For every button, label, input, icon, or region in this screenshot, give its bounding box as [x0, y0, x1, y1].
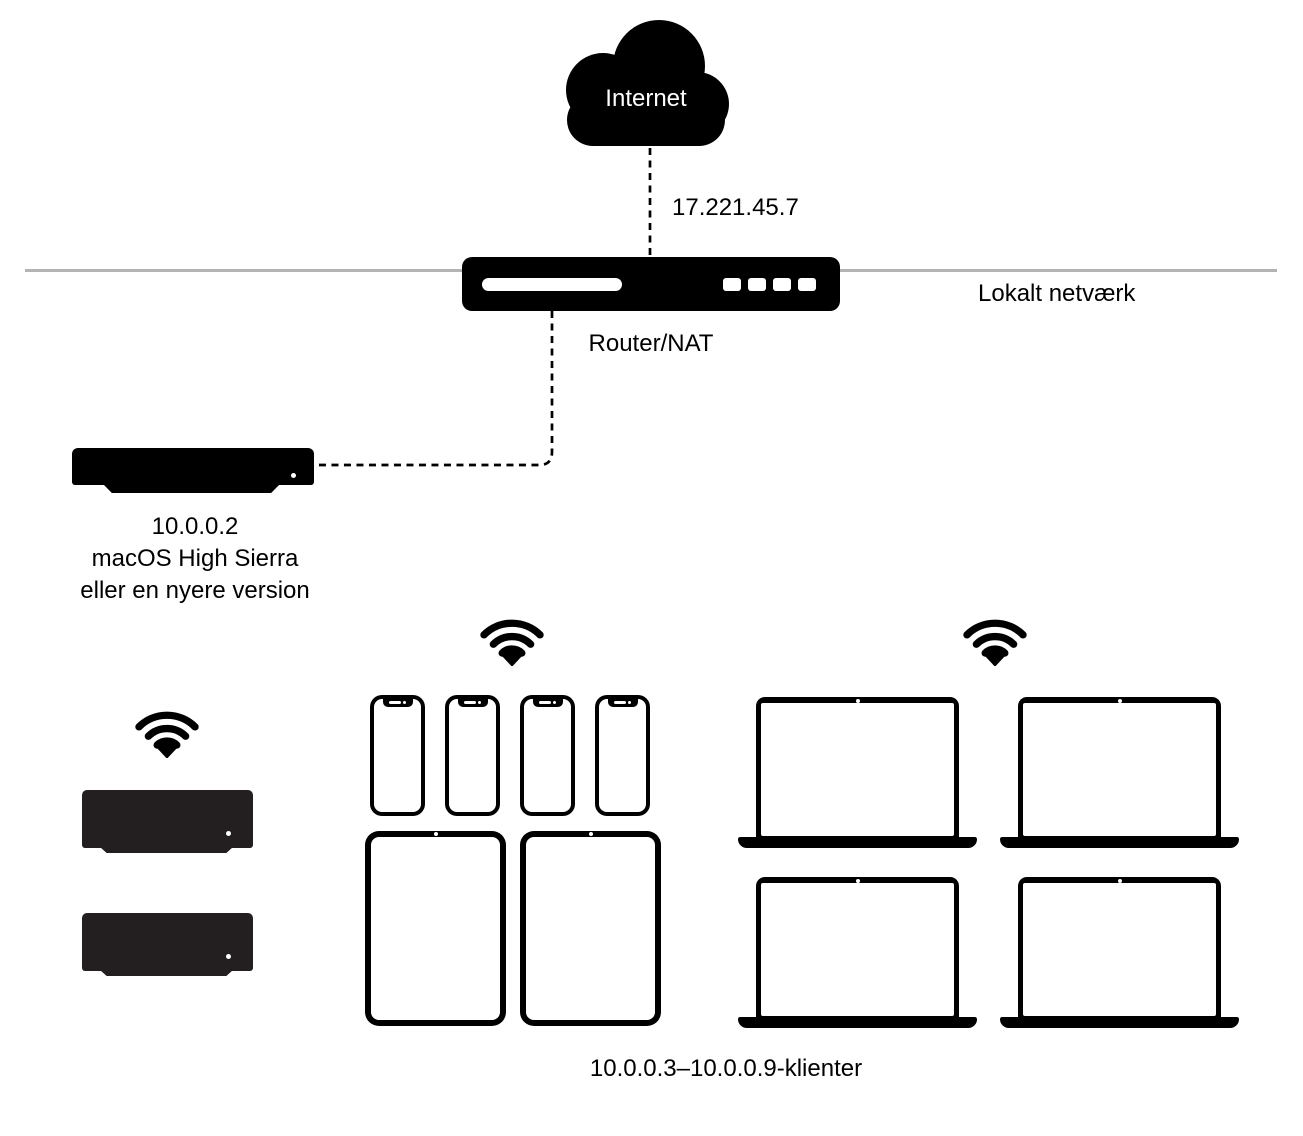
phone-notch — [383, 698, 413, 707]
phone-camera — [628, 701, 631, 704]
mac-mini-body — [82, 913, 253, 971]
power-led — [226, 954, 231, 959]
clients-range-label: 10.0.0.3–10.0.0.9-klienter — [426, 1055, 1026, 1083]
iphone-icon — [445, 695, 500, 816]
iphone-icon — [595, 695, 650, 816]
ipad-screen — [371, 837, 500, 1020]
macbook-display — [761, 883, 954, 1016]
phone-screen — [374, 699, 421, 812]
ipad-camera — [589, 832, 593, 836]
mac-mini-pedestal — [103, 484, 280, 493]
ipad-screen — [526, 837, 655, 1020]
wifi-icon — [951, 604, 1039, 666]
mac-mini-server-icon — [72, 448, 314, 493]
router-label: Router/NAT — [462, 330, 840, 358]
mac-mini-body — [72, 448, 314, 485]
macbook-display — [1023, 703, 1216, 836]
ipad-camera — [434, 832, 438, 836]
wifi-icon — [123, 696, 211, 758]
macbook-screen — [1018, 697, 1221, 840]
router-led — [748, 278, 766, 291]
iphone-icon — [370, 695, 425, 816]
macbook-base — [1000, 1017, 1239, 1028]
ipad-icon — [365, 831, 506, 1026]
phone-speaker — [464, 701, 476, 704]
macbook-icon — [738, 877, 977, 1028]
router-led — [798, 278, 816, 291]
macbook-camera — [856, 699, 860, 703]
macbook-camera — [856, 879, 860, 883]
phone-camera — [478, 701, 481, 704]
internet-label: Internet — [555, 85, 737, 113]
phone-notch — [533, 698, 563, 707]
macbook-base — [738, 1017, 977, 1028]
server-os-label-2: eller en nyere version — [40, 575, 350, 607]
macbook-icon — [1000, 877, 1239, 1028]
phone-notch — [608, 698, 638, 707]
wifi-icon — [468, 604, 556, 666]
local-network-label: Lokalt netværk — [978, 280, 1135, 308]
phone-screen — [449, 699, 496, 812]
macbook-screen — [1018, 877, 1221, 1020]
phone-notch — [458, 698, 488, 707]
server-caption: 10.0.0.2 macOS High Sierra eller en nyer… — [40, 511, 350, 607]
mac-mini-client-icon — [82, 913, 253, 976]
power-led — [291, 473, 296, 478]
macbook-camera — [1118, 879, 1122, 883]
network-diagram: Internet 17.221.45.7 Router/NAT Lokalt n… — [0, 0, 1303, 1136]
phone-speaker — [389, 701, 401, 704]
macbook-display — [1023, 883, 1216, 1016]
phone-speaker — [614, 701, 626, 704]
mac-mini-pedestal — [100, 970, 233, 976]
phone-camera — [403, 701, 406, 704]
wan-ip-label: 17.221.45.7 — [672, 194, 799, 222]
phone-screen — [524, 699, 571, 812]
macbook-base — [1000, 837, 1239, 848]
macbook-icon — [738, 697, 977, 848]
macbook-screen — [756, 877, 959, 1020]
macbook-icon — [1000, 697, 1239, 848]
router-slot — [482, 278, 622, 291]
phone-screen — [599, 699, 646, 812]
macbook-screen — [756, 697, 959, 840]
router-led — [723, 278, 741, 291]
router-led — [773, 278, 791, 291]
server-os-label: macOS High Sierra — [40, 543, 350, 575]
power-led — [226, 831, 231, 836]
internet-cloud-icon — [555, 18, 737, 148]
mac-mini-client-icon — [82, 790, 253, 853]
macbook-camera — [1118, 699, 1122, 703]
iphone-icon — [520, 695, 575, 816]
mac-mini-pedestal — [100, 847, 233, 853]
server-ip-label: 10.0.0.2 — [40, 511, 350, 543]
phone-speaker — [539, 701, 551, 704]
mac-mini-body — [82, 790, 253, 848]
macbook-display — [761, 703, 954, 836]
macbook-base — [738, 837, 977, 848]
phone-camera — [553, 701, 556, 704]
ipad-icon — [520, 831, 661, 1026]
router-icon — [462, 257, 840, 311]
